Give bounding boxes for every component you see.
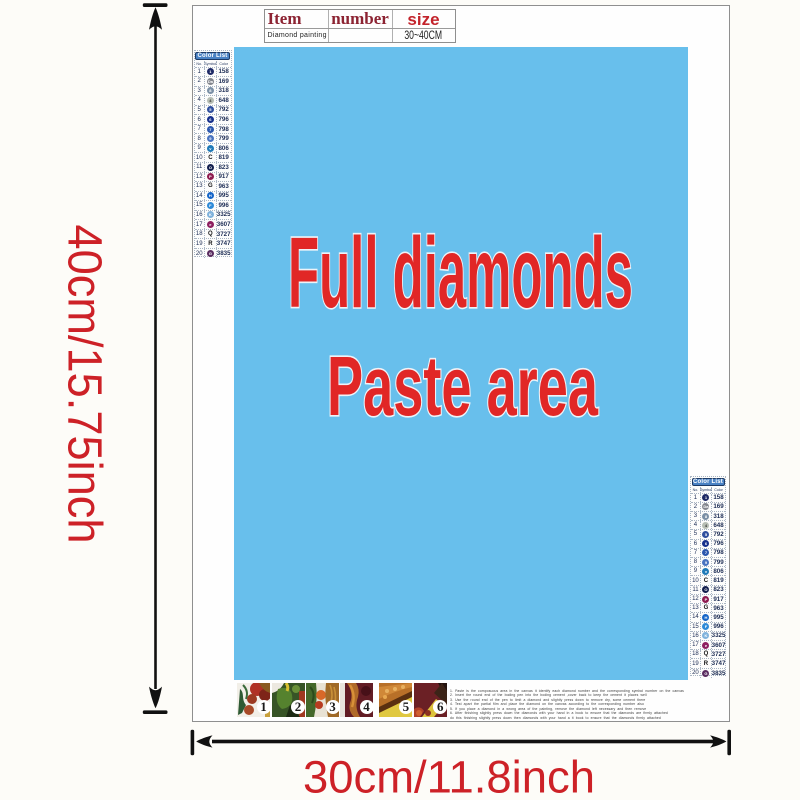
svg-text:40cm/15.75inch: 40cm/15.75inch bbox=[58, 225, 112, 544]
svg-text:30cm/11.8inch: 30cm/11.8inch bbox=[303, 752, 595, 800]
